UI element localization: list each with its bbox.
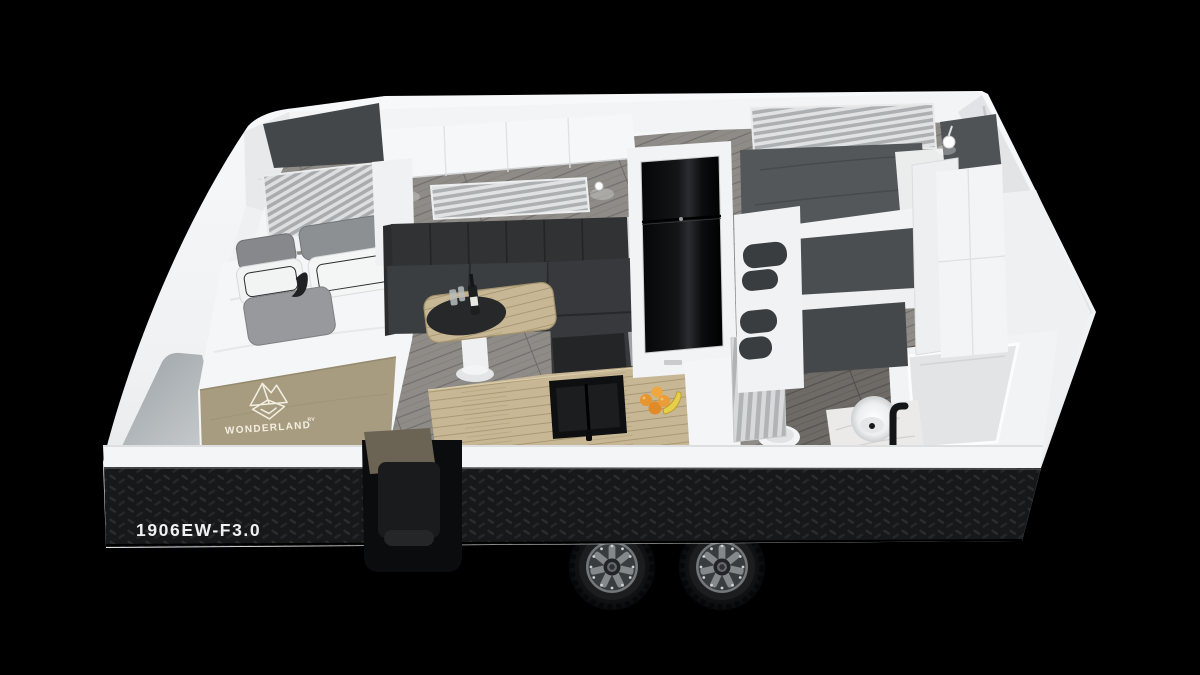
dinette-window-blind	[431, 178, 589, 219]
fridge-door	[641, 156, 723, 353]
fridge-logo-badge	[679, 217, 683, 221]
entry-step-well	[362, 428, 462, 572]
table-pedestal-base-top	[462, 365, 488, 375]
fridge-vent	[664, 360, 682, 365]
kitchen-sink	[549, 375, 627, 441]
model-label: 1906EW-F3.0	[136, 520, 261, 540]
sink-tap	[586, 431, 592, 441]
render-canvas: WONDERLAND RV	[0, 0, 1200, 675]
fridge	[627, 141, 737, 378]
caravan-cutaway-render: WONDERLAND RV	[0, 0, 1200, 675]
near-wall-cut-band	[103, 445, 1043, 470]
step-tread	[384, 530, 434, 546]
brand-suffix-text: RV	[307, 417, 315, 424]
step-box	[378, 462, 440, 538]
basin-drain	[869, 423, 875, 429]
bunk-front-panel	[734, 206, 804, 393]
bunk-beds	[734, 104, 1008, 393]
rear-wardrobe	[936, 164, 1008, 358]
checker-plate-skirt: 1906EW-F3.0	[104, 467, 1041, 547]
